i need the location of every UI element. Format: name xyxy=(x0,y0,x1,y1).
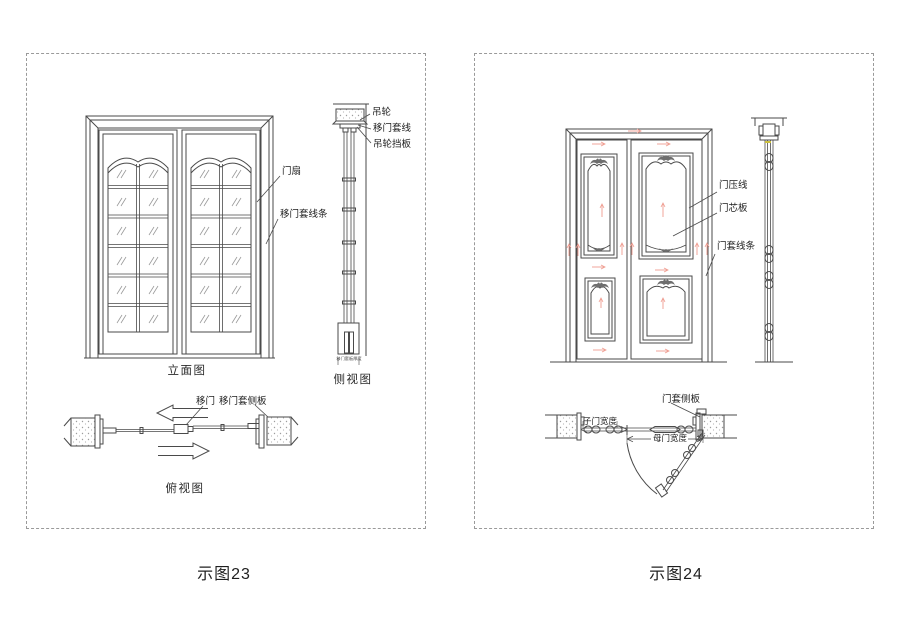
label-mother-door-width: 母门宽度 xyxy=(652,434,688,443)
label-door-core-panel: 门芯板 xyxy=(719,204,748,214)
side-view-drawing xyxy=(333,104,369,365)
yellow-marker xyxy=(765,141,771,143)
label-casing-board-thickness-dim: 移门套板厚度 xyxy=(336,357,361,361)
view-label-elevation: 立面图 xyxy=(168,366,207,378)
figure23-drawing xyxy=(27,54,425,528)
label-door-casing-side-panel: 门套侧板 xyxy=(662,395,700,405)
right-wall-section xyxy=(702,415,724,438)
leader-lines xyxy=(671,192,717,417)
label-sliding-door: 移门 xyxy=(196,397,215,407)
label-hanging-wheel: 吊轮 xyxy=(372,108,391,118)
elevation-view-drawing xyxy=(550,129,727,362)
top-view-drawing xyxy=(545,409,737,497)
door-section-strip xyxy=(344,132,354,323)
slide-right-arrow-icon xyxy=(158,443,209,459)
label-son-door-width: 子门宽度 xyxy=(583,417,617,426)
left-wall-section xyxy=(557,415,577,438)
side-view-drawing xyxy=(751,118,793,362)
slide-left-arrow-icon xyxy=(157,405,208,421)
top-view-drawing xyxy=(64,405,298,459)
figure24-caption: 示图24 xyxy=(649,567,703,583)
label-door-pressing-line: 门压线 xyxy=(719,181,748,191)
left-glass-frame xyxy=(108,158,168,332)
view-label-top: 俯视图 xyxy=(166,484,205,496)
left-wall-section xyxy=(71,418,95,446)
door-section-strip xyxy=(765,140,773,362)
miter-joints xyxy=(566,129,712,139)
view-label-side: 侧视图 xyxy=(334,375,373,387)
label-door-leaf: 门扇 xyxy=(282,167,301,177)
right-glass-frame xyxy=(191,158,251,332)
label-sliding-door-casing-line: 移门套线 xyxy=(373,124,411,134)
carved-crown-ornaments xyxy=(590,156,675,289)
miter-joints xyxy=(86,116,273,128)
track-box-section xyxy=(336,109,364,121)
label-hanging-wheel-baffle: 吊轮挡板 xyxy=(373,140,411,150)
frame-head-section xyxy=(763,124,775,136)
meeting-stile-plan xyxy=(174,425,188,434)
door-swing-arc xyxy=(627,443,657,494)
drawing-sheet: { "page": { "background": "#ffffff", "li… xyxy=(0,0,900,636)
left-door-leaf xyxy=(99,130,177,354)
label-sliding-door-casing-side-panel: 移门套侧板 xyxy=(219,397,267,407)
figure24-panel: 门压线 门芯板 门套线条 门套侧板 子门宽度 母门宽度 xyxy=(474,53,874,529)
wall-break-mark xyxy=(291,417,298,445)
figure23-caption: 示图23 xyxy=(197,567,251,583)
son-width-dim-arrows xyxy=(581,427,627,433)
door-casing-outer xyxy=(86,116,273,358)
wall-break-mark xyxy=(64,418,71,446)
right-door-leaf xyxy=(182,130,260,354)
figure24-drawing xyxy=(475,54,873,528)
right-wall-section xyxy=(267,417,291,445)
label-door-casing-molding: 门套线条 xyxy=(717,242,755,252)
figure23-panel: 吊轮 移门套线 吊轮挡板 门扇 移门套线条 移门 移门套侧板 移门套板厚度 立面… xyxy=(26,53,426,529)
elevation-view-drawing xyxy=(84,116,275,358)
label-sliding-door-casing-molding: 移门套线条 xyxy=(280,210,328,220)
